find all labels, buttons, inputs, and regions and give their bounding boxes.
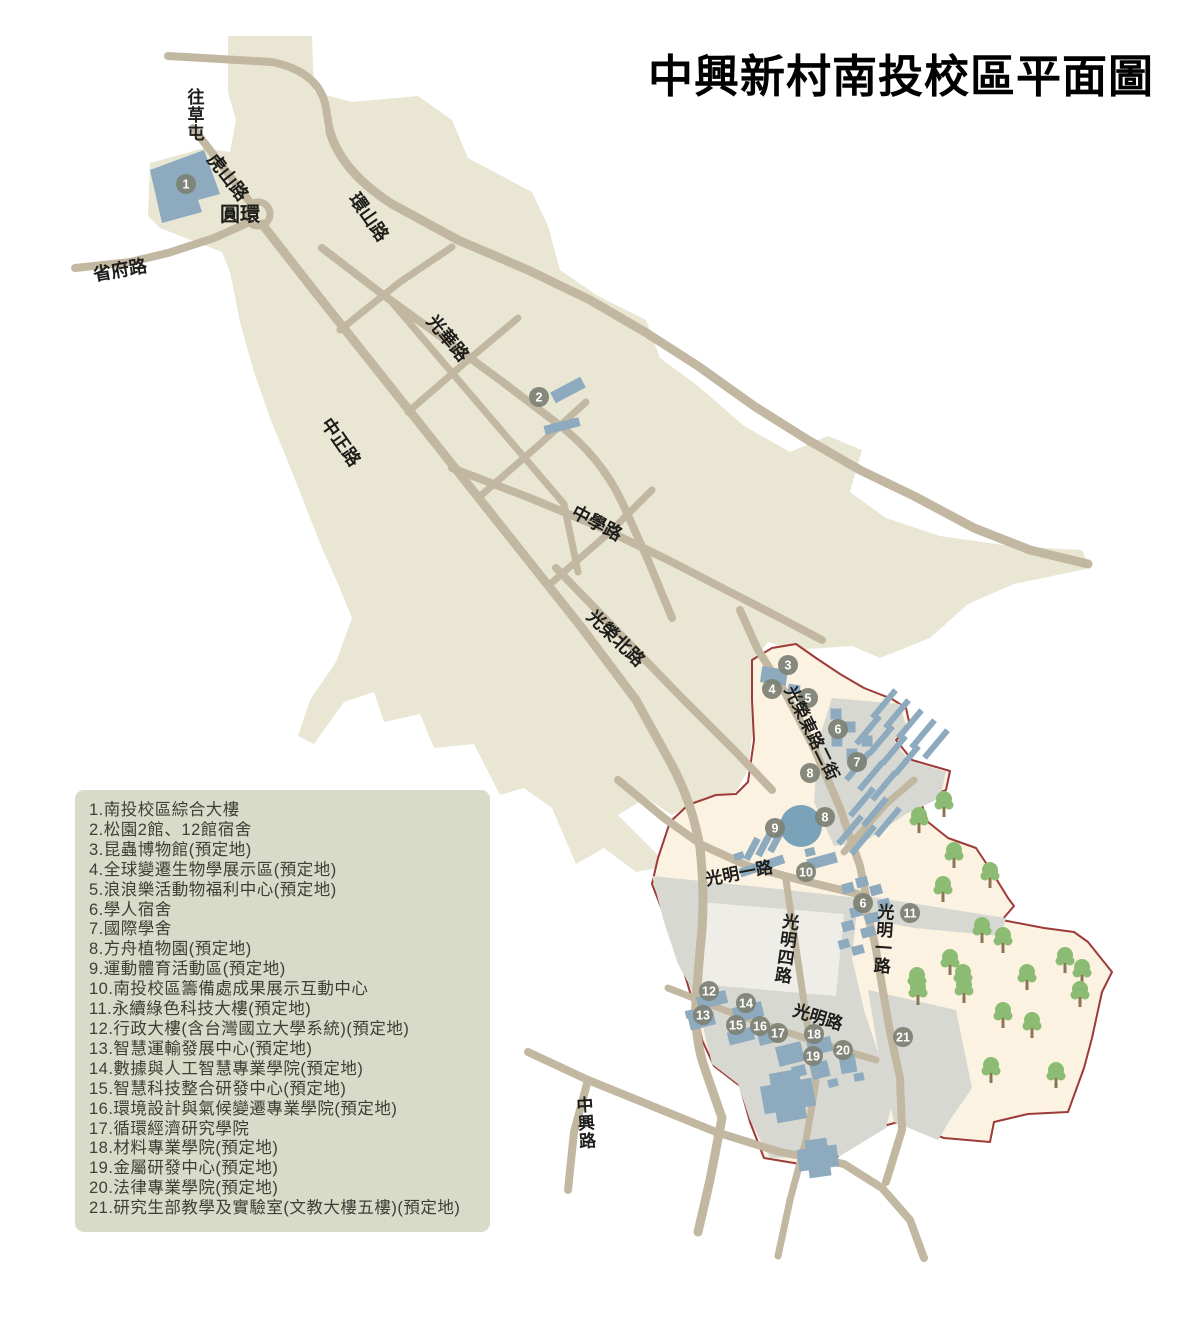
marker-number: 17 — [771, 1027, 785, 1041]
marker-number: 15 — [729, 1019, 743, 1033]
pond — [780, 805, 822, 847]
marker-number: 8 — [822, 811, 829, 825]
tree-leaf — [944, 886, 953, 895]
map-marker-6: 6 — [828, 719, 848, 739]
map-marker-11: 11 — [900, 903, 920, 923]
tree-leaf — [920, 817, 929, 826]
tree-leaf — [910, 817, 919, 826]
marker-number: 1 — [183, 178, 190, 192]
map-marker-17: 17 — [768, 1023, 788, 1043]
tree-leaf — [934, 886, 943, 895]
tree-leaf — [919, 989, 928, 998]
map-marker-20: 20 — [833, 1040, 853, 1060]
tree-leaf — [994, 1012, 1003, 1021]
tree-leaf — [1081, 991, 1090, 1000]
map-marker-2: 2 — [529, 387, 549, 407]
map-marker-19: 19 — [803, 1046, 823, 1066]
tree-leaf — [1047, 1072, 1056, 1081]
tree-icon — [935, 791, 954, 817]
building — [862, 736, 873, 747]
map-marker-9: 9 — [765, 818, 785, 838]
marker-number: 18 — [807, 1028, 821, 1042]
legend-item-2: 2.松園2館、12館宿舍 — [89, 821, 476, 841]
map-marker-14: 14 — [736, 993, 756, 1013]
legend-item-5: 5.浪浪樂活動物福利中心(預定地) — [89, 881, 476, 901]
map-marker-12: 12 — [699, 981, 719, 1001]
marker-number: 2 — [536, 391, 543, 405]
tree-leaf — [945, 801, 954, 810]
tree-leaf — [981, 872, 990, 881]
marker-number: 21 — [896, 1031, 910, 1045]
map-marker-6: 6 — [853, 893, 873, 913]
tree-leaf — [935, 801, 944, 810]
marker-number: 7 — [854, 756, 861, 770]
legend-item-14: 14.數據與人工智慧專業學院(預定地) — [89, 1060, 476, 1080]
tree-leaf — [994, 937, 1003, 946]
legend-item-7: 7.國際學舍 — [89, 920, 476, 940]
tree-leaf — [955, 987, 964, 996]
tree-leaf — [991, 872, 1000, 881]
tree-leaf — [1071, 991, 1080, 1000]
tree-leaf — [1023, 1022, 1032, 1031]
legend-item-16: 16.環境設計與氣候變遷專業學院(預定地) — [89, 1100, 476, 1120]
marker-number: 13 — [696, 1009, 710, 1023]
legend-item-13: 13.智慧運輸發展中心(預定地) — [89, 1040, 476, 1060]
tree-leaf — [941, 959, 950, 968]
legend-item-8: 8.方舟植物園(預定地) — [89, 940, 476, 960]
road-label: 省府路 — [91, 255, 150, 285]
marker-number: 20 — [836, 1044, 850, 1058]
tree-leaf — [945, 852, 954, 861]
tree-leaf — [982, 1067, 991, 1076]
campus-plaza — [698, 902, 844, 996]
legend-item-1: 1.南投校區綜合大樓 — [89, 801, 476, 821]
marker-number: 12 — [702, 985, 716, 999]
road-label: 中興路 — [576, 1094, 598, 1151]
marker-number: 9 — [772, 822, 779, 836]
legend-item-17: 17.循環經濟研究學院 — [89, 1120, 476, 1140]
tree-leaf — [992, 1067, 1001, 1076]
legend-item-3: 3.昆蟲博物館(預定地) — [89, 841, 476, 861]
map-marker-7: 7 — [847, 752, 867, 772]
tree-leaf — [1033, 1022, 1042, 1031]
marker-number: 11 — [903, 907, 916, 921]
legend-item-18: 18.材料專業學院(預定地) — [89, 1139, 476, 1159]
marker-number: 6 — [860, 897, 867, 911]
map-title: 中興新村南投校區平面圖 — [648, 40, 1154, 105]
tree-leaf — [1018, 974, 1027, 983]
map-marker-1: 1 — [176, 174, 196, 194]
legend-item-10: 10.南投校區籌備處成果展示互動中心 — [89, 980, 476, 1000]
building — [853, 1072, 864, 1082]
tree-leaf — [965, 987, 974, 996]
map-marker-13: 13 — [693, 1005, 713, 1025]
legend-item-4: 4.全球變遷生物學展示區(預定地) — [89, 861, 476, 881]
tree-leaf — [955, 852, 964, 861]
map-marker-15: 15 — [726, 1015, 746, 1035]
road-label: 往草屯 — [188, 87, 205, 143]
legend-item-19: 19.金屬研發中心(預定地) — [89, 1159, 476, 1179]
marker-number: 6 — [835, 723, 842, 737]
map-marker-8: 8 — [815, 807, 835, 827]
map-marker-16: 16 — [750, 1016, 770, 1036]
map-marker-21: 21 — [893, 1027, 913, 1047]
map-marker-8: 8 — [800, 763, 820, 783]
legend-item-15: 15.智慧科技整合研發中心(預定地) — [89, 1080, 476, 1100]
marker-number: 4 — [769, 683, 776, 697]
tree-leaf — [1073, 969, 1082, 978]
tree-leaf — [1057, 1072, 1066, 1081]
building — [831, 709, 842, 720]
legend-item-11: 11.永續綠色科技大樓(預定地) — [89, 1000, 476, 1020]
tree-leaf — [973, 927, 982, 936]
marker-number: 10 — [799, 866, 813, 880]
legend-item-21: 21.研究生部教學及實驗室(文教大樓五樓)(預定地) — [89, 1199, 476, 1219]
legend-item-12: 12.行政大樓(含台灣國立大學系統)(預定地) — [89, 1020, 476, 1040]
tree-leaf — [1066, 957, 1075, 966]
tree-leaf — [909, 989, 918, 998]
legend-item-9: 9.運動體育活動區(預定地) — [89, 960, 476, 980]
map-marker-10: 10 — [796, 862, 816, 882]
tree-leaf — [983, 927, 992, 936]
marker-number: 3 — [785, 659, 792, 673]
tree-leaf — [1083, 969, 1092, 978]
legend-item-6: 6.學人宿舍 — [89, 901, 476, 921]
tree-leaf — [1056, 957, 1065, 966]
tree-leaf — [1004, 1012, 1013, 1021]
legend-item-20: 20.法律專業學院(預定地) — [89, 1179, 476, 1199]
road-label: 圓環 — [220, 203, 261, 226]
village-area — [148, 36, 1090, 872]
map-marker-4: 4 — [762, 679, 782, 699]
marker-number: 8 — [807, 767, 814, 781]
tree-leaf — [1004, 937, 1013, 946]
marker-number: 14 — [739, 997, 753, 1011]
map-canvas: 12345678891061112131415161718192021往草屯虎山… — [0, 0, 1194, 1326]
map-marker-3: 3 — [778, 655, 798, 675]
marker-number: 16 — [753, 1020, 767, 1034]
marker-number: 19 — [806, 1050, 820, 1064]
tree-leaf — [1028, 974, 1037, 983]
legend-box: 1.南投校區綜合大樓2.松園2館、12館宿舍3.昆蟲博物館(預定地)4.全球變遷… — [75, 790, 490, 1232]
